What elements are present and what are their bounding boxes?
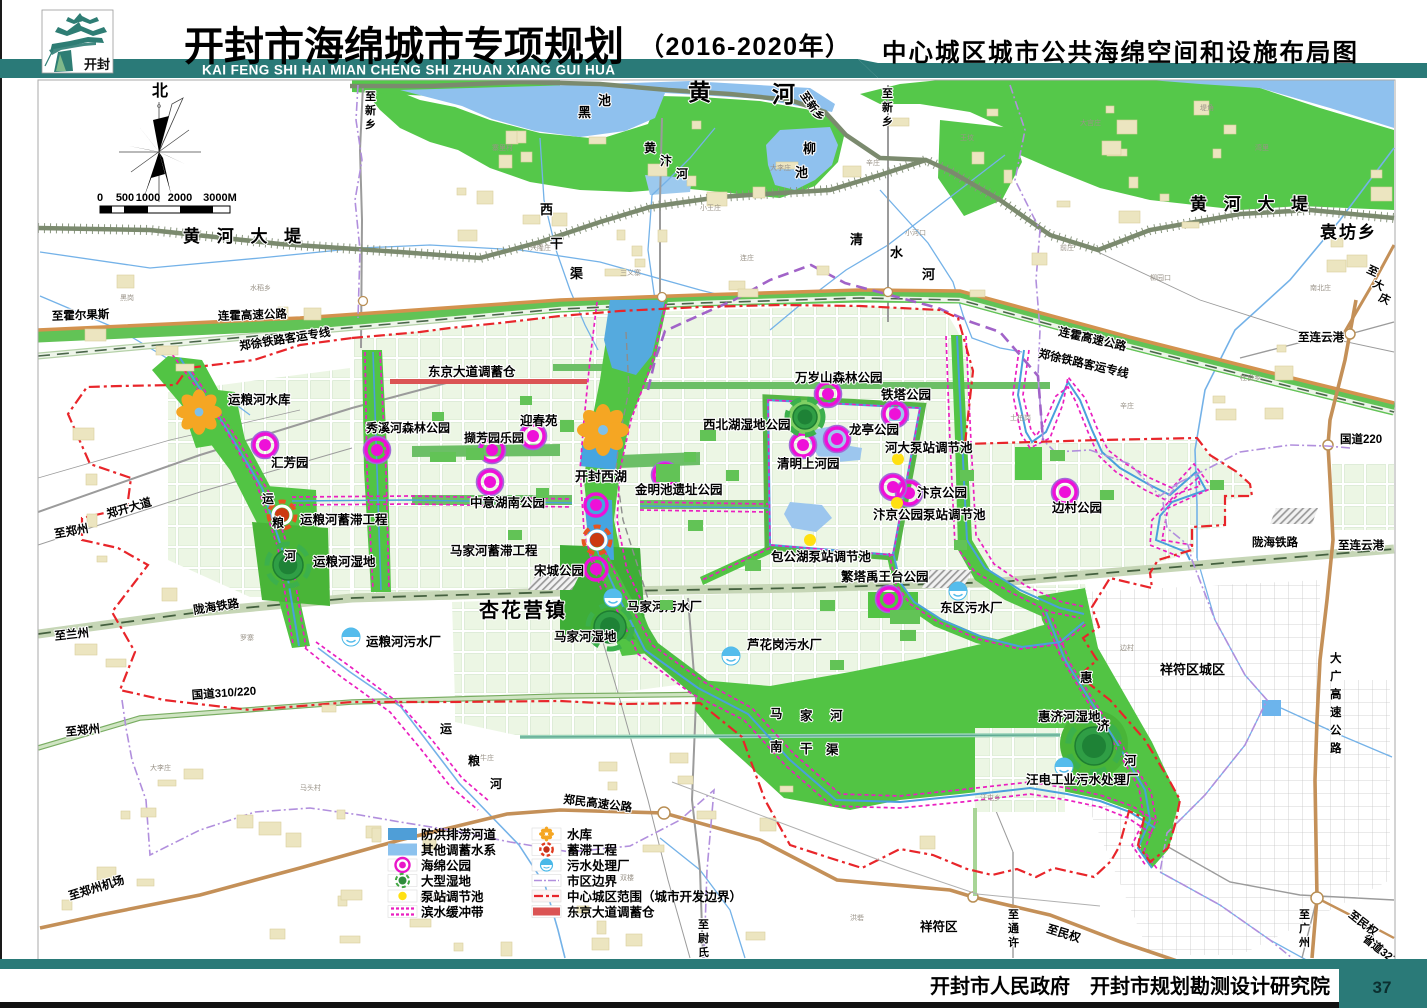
svg-text:河: 河 <box>675 166 688 181</box>
svg-text:宋城公园: 宋城公园 <box>533 563 584 578</box>
svg-text:速: 速 <box>1330 705 1342 719</box>
svg-text:王坟: 王坟 <box>960 133 974 142</box>
svg-text:开封西湖: 开封西湖 <box>575 469 627 484</box>
svg-text:至: 至 <box>1299 908 1310 921</box>
svg-text:高: 高 <box>1330 687 1342 701</box>
svg-text:马家河蓄滞工程: 马家河蓄滞工程 <box>450 543 538 558</box>
svg-text:西北湖湿地公园: 西北湖湿地公园 <box>703 417 791 432</box>
svg-text:渠: 渠 <box>826 742 839 757</box>
svg-text:北: 北 <box>152 82 168 100</box>
svg-text:至连云港: 至连云港 <box>1298 330 1344 344</box>
svg-text:东区污水厂: 东区污水厂 <box>940 600 1003 615</box>
svg-text:撷芳园乐园: 撷芳园乐园 <box>464 430 524 445</box>
svg-text:洪砦: 洪砦 <box>850 913 864 922</box>
svg-text:黑岗: 黑岗 <box>120 294 134 302</box>
svg-text:前庄: 前庄 <box>1060 243 1074 252</box>
svg-text:其他调蓄水系: 其他调蓄水系 <box>421 843 497 858</box>
svg-text:迎春苑: 迎春苑 <box>520 413 558 428</box>
svg-text:双楼: 双楼 <box>620 873 634 882</box>
svg-text:牛庄: 牛庄 <box>480 753 494 762</box>
svg-text:氏: 氏 <box>698 945 709 959</box>
svg-text:通: 通 <box>1008 922 1019 935</box>
svg-text:河: 河 <box>772 81 795 107</box>
svg-text:黄: 黄 <box>688 79 711 105</box>
svg-text:小王庄: 小王庄 <box>700 203 721 212</box>
svg-text:罗寨: 罗寨 <box>240 633 254 642</box>
svg-text:至: 至 <box>365 90 376 103</box>
svg-text:秀溪河森林公园: 秀溪河森林公园 <box>365 420 450 435</box>
svg-text:运: 运 <box>262 492 274 506</box>
svg-text:马家河湿地: 马家河湿地 <box>554 629 617 644</box>
svg-text:边村: 边村 <box>1120 643 1134 652</box>
svg-text:污水处理厂: 污水处理厂 <box>567 858 630 873</box>
svg-text:三义寨: 三义寨 <box>620 268 641 277</box>
svg-text:清明上河园: 清明上河园 <box>777 456 840 471</box>
svg-text:至: 至 <box>882 87 893 100</box>
svg-text:粮: 粮 <box>272 515 284 530</box>
svg-text:泵站调节池: 泵站调节池 <box>421 889 484 904</box>
svg-text:小河口: 小河口 <box>905 228 926 237</box>
svg-text:河: 河 <box>922 267 935 282</box>
svg-text:0: 0 <box>97 192 103 204</box>
svg-text:3000M: 3000M <box>203 192 237 204</box>
svg-text:祥符区城区: 祥符区城区 <box>1160 662 1225 677</box>
svg-text:2000: 2000 <box>168 192 192 204</box>
svg-text:大: 大 <box>1330 651 1342 665</box>
svg-text:黄: 黄 <box>644 140 656 155</box>
svg-text:汪电工业污水处理厂: 汪电工业污水处理厂 <box>1026 772 1139 787</box>
svg-text:乡: 乡 <box>882 115 893 128</box>
svg-text:KAI FENG SHI HAI MIAN CHENG SH: KAI FENG SHI HAI MIAN CHENG SHI ZHUAN XI… <box>202 63 615 78</box>
svg-text:连庄: 连庄 <box>740 253 754 262</box>
svg-text:池: 池 <box>598 93 611 108</box>
svg-text:中心城区城市公共海绵空间和设施布局图: 中心城区城市公共海绵空间和设施布局图 <box>882 38 1359 67</box>
svg-text:惠济河湿地: 惠济河湿地 <box>1038 709 1101 724</box>
svg-text:清: 清 <box>850 232 863 247</box>
svg-text:池: 池 <box>795 165 808 180</box>
svg-text:广: 广 <box>1299 921 1310 935</box>
svg-text:尉: 尉 <box>698 931 709 945</box>
svg-text:至: 至 <box>1008 908 1019 921</box>
svg-text:运: 运 <box>440 722 452 736</box>
svg-text:汴: 汴 <box>660 153 672 168</box>
svg-text:广: 广 <box>1330 669 1342 683</box>
svg-text:黑: 黑 <box>578 105 591 120</box>
svg-text:大李庄: 大李庄 <box>150 763 171 772</box>
svg-text:辛庄: 辛庄 <box>1120 401 1134 410</box>
svg-text:（2016-2020年）: （2016-2020年） <box>639 32 852 61</box>
svg-text:干: 干 <box>550 236 563 251</box>
svg-text:开封市人民政府 开封市规划勘测设计研究院: 开封市人民政府 开封市规划勘测设计研究院 <box>930 974 1330 998</box>
svg-text:路: 路 <box>1330 741 1342 755</box>
svg-text:河: 河 <box>830 708 843 723</box>
svg-text:袁坊乡: 袁坊乡 <box>1319 222 1377 242</box>
svg-text:汴京公园泵站调节池: 汴京公园泵站调节池 <box>873 507 986 522</box>
svg-text:边村公园: 边村公园 <box>1051 500 1102 515</box>
svg-text:龙亭公园: 龙亭公园 <box>848 422 899 437</box>
svg-text:南北庄: 南北庄 <box>1310 283 1331 292</box>
svg-text:新: 新 <box>365 103 376 117</box>
svg-text:河: 河 <box>489 776 502 791</box>
svg-text:1000: 1000 <box>136 192 160 204</box>
svg-text:至连云港: 至连云港 <box>1338 538 1384 552</box>
svg-text:水稻乡: 水稻乡 <box>250 283 271 292</box>
svg-text:滨水缓冲带: 滨水缓冲带 <box>421 905 484 920</box>
svg-text:东京大道调蓄仓: 东京大道调蓄仓 <box>567 905 655 920</box>
svg-text:市区边界: 市区边界 <box>567 874 618 889</box>
svg-text:河: 河 <box>283 548 296 563</box>
svg-text:南: 南 <box>770 739 783 754</box>
svg-text:祥符区: 祥符区 <box>920 919 958 934</box>
svg-text:杏花营镇: 杏花营镇 <box>478 598 567 622</box>
svg-text:蓄滞工程: 蓄滞工程 <box>567 843 618 858</box>
svg-text:家: 家 <box>800 708 813 723</box>
svg-text:辛庄: 辛庄 <box>866 158 880 167</box>
svg-text:运粮河蓄滞工程: 运粮河蓄滞工程 <box>300 512 388 527</box>
svg-text:汪屯乡: 汪屯乡 <box>980 793 1001 802</box>
svg-text:西: 西 <box>540 202 553 217</box>
svg-text:防洪排涝河道: 防洪排涝河道 <box>421 827 497 842</box>
svg-text:37: 37 <box>1373 978 1392 997</box>
svg-text:海绵公园: 海绵公园 <box>421 858 471 873</box>
svg-text:许: 许 <box>1008 935 1019 949</box>
svg-text:包公湖泵站调节池: 包公湖泵站调节池 <box>770 549 872 564</box>
svg-text:汇芳园: 汇芳园 <box>271 455 309 470</box>
svg-text:马: 马 <box>770 707 783 721</box>
svg-text:芦花岗污水厂: 芦花岗污水厂 <box>747 637 822 652</box>
svg-text:水: 水 <box>890 245 904 260</box>
svg-text:中意湖南公园: 中意湖南公园 <box>470 495 545 510</box>
svg-text:黄 河 大 堤: 黄 河 大 堤 <box>183 226 307 246</box>
svg-text:开封: 开封 <box>84 57 110 72</box>
svg-text:乡: 乡 <box>365 118 376 131</box>
svg-text:粮: 粮 <box>468 753 480 768</box>
svg-text:500: 500 <box>116 192 134 204</box>
svg-text:中心城区范围（城市开发边界）: 中心城区范围（城市开发边界） <box>567 889 742 904</box>
svg-text:运粮河水库: 运粮河水库 <box>228 392 291 407</box>
svg-text:黄 河 大 堤: 黄 河 大 堤 <box>1190 194 1314 214</box>
svg-text:繁塔禹王台公园: 繁塔禹王台公园 <box>841 569 929 584</box>
svg-text:公: 公 <box>1330 724 1342 737</box>
svg-text:兴隆庄: 兴隆庄 <box>530 243 551 252</box>
svg-text:万岁山森林公园: 万岁山森林公园 <box>794 370 883 385</box>
svg-text:杜良乡: 杜良乡 <box>1240 373 1261 382</box>
svg-text:惠: 惠 <box>1080 670 1093 685</box>
svg-text:大李庄: 大李庄 <box>770 163 791 172</box>
svg-text:寨里村: 寨里村 <box>492 143 513 152</box>
svg-text:湾里: 湾里 <box>1255 143 1269 152</box>
svg-text:堤角: 堤角 <box>1200 103 1214 112</box>
svg-text:干: 干 <box>800 742 813 756</box>
svg-text:土柏岗: 土柏岗 <box>1010 413 1031 422</box>
svg-text:至: 至 <box>698 918 709 931</box>
svg-text:国道220: 国道220 <box>1340 432 1382 446</box>
svg-text:水库: 水库 <box>567 827 593 842</box>
svg-text:东京大道调蓄仓: 东京大道调蓄仓 <box>428 364 516 379</box>
svg-text:运粮河湿地: 运粮河湿地 <box>313 554 376 569</box>
svg-text:汴京公园: 汴京公园 <box>917 485 967 500</box>
svg-text:河大泵站调节池: 河大泵站调节池 <box>885 440 973 455</box>
svg-text:河: 河 <box>1124 753 1137 768</box>
svg-text:铁塔公园: 铁塔公园 <box>881 387 931 402</box>
svg-text:马头村: 马头村 <box>300 783 321 792</box>
svg-text:大宫庄: 大宫庄 <box>1080 118 1101 127</box>
svg-text:柳: 柳 <box>803 141 816 156</box>
svg-text:柳园口: 柳园口 <box>1150 273 1171 282</box>
svg-text:陇海铁路: 陇海铁路 <box>1252 535 1298 549</box>
svg-text:大型湿地: 大型湿地 <box>421 874 472 889</box>
svg-text:新: 新 <box>882 100 893 114</box>
svg-text:渠: 渠 <box>569 266 584 281</box>
svg-text:金明池遗址公园: 金明池遗址公园 <box>634 482 723 497</box>
svg-text:运粮河污水厂: 运粮河污水厂 <box>366 634 441 649</box>
svg-text:州: 州 <box>1298 936 1310 949</box>
